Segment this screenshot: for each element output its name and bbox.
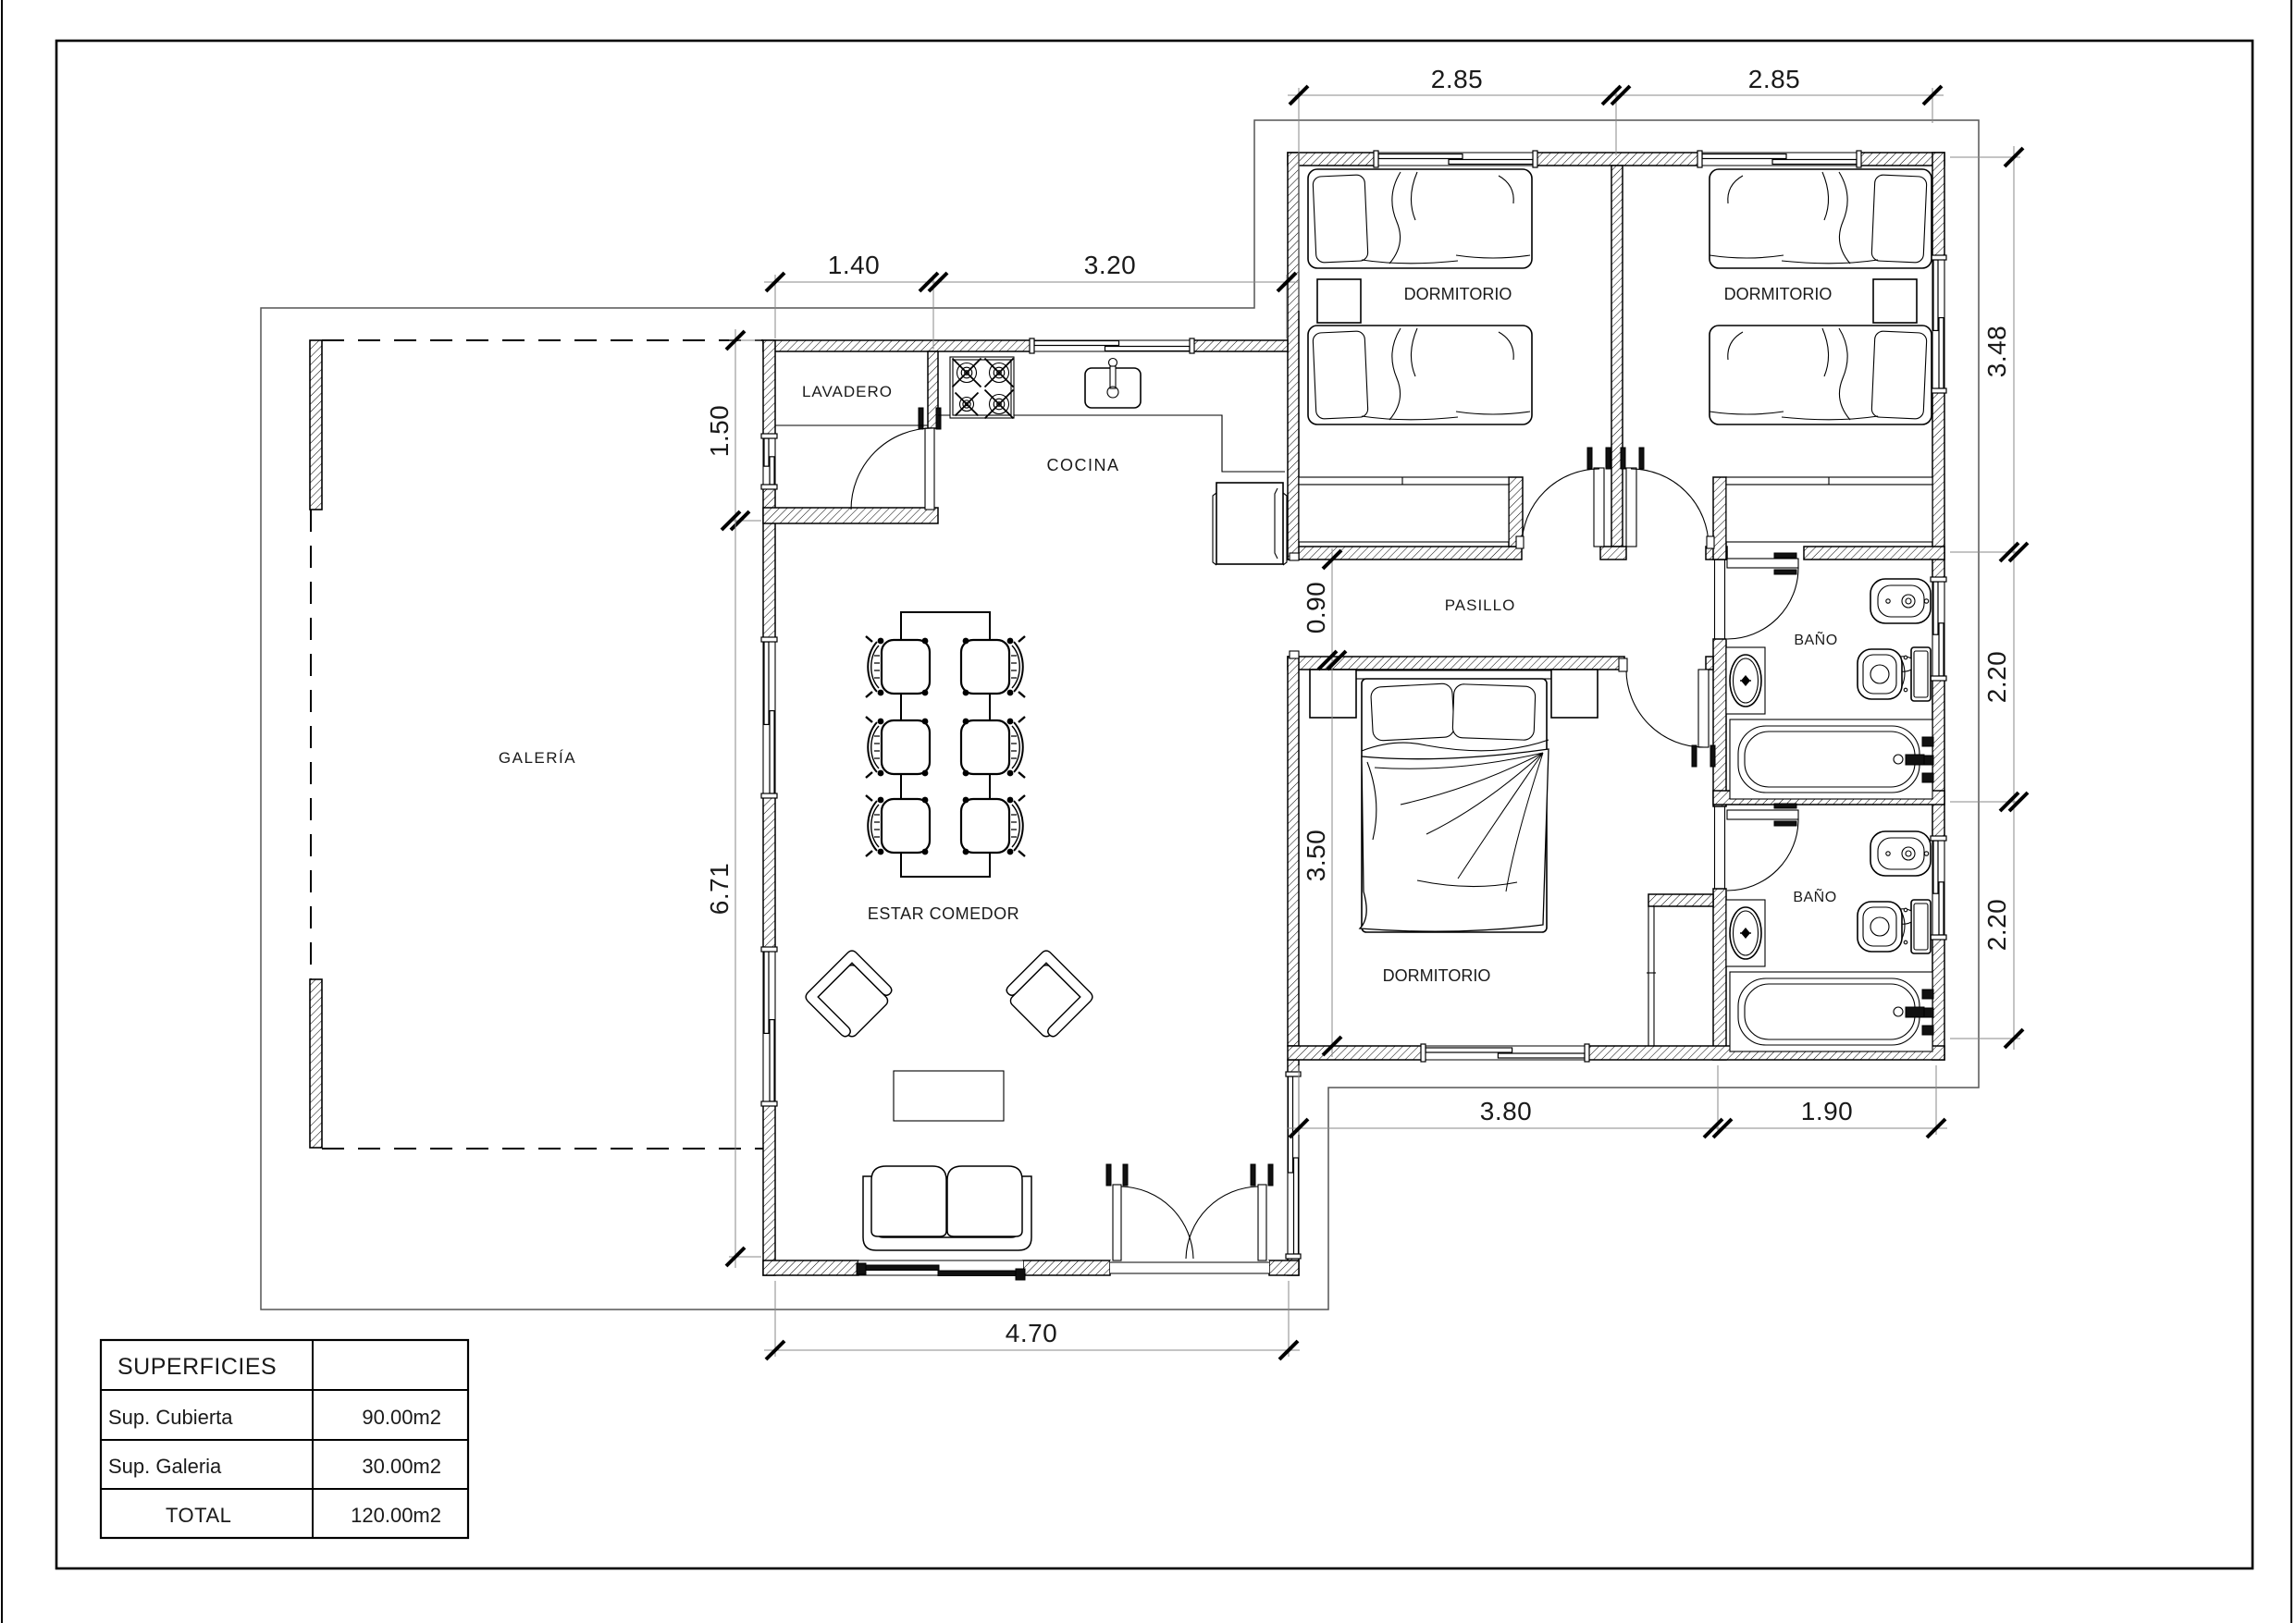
svg-text:PASILLO: PASILLO bbox=[1445, 596, 1516, 614]
svg-text:DORMITORIO: DORMITORIO bbox=[1724, 285, 1833, 303]
svg-text:0.90: 0.90 bbox=[1302, 582, 1330, 634]
svg-text:1.90: 1.90 bbox=[1801, 1097, 1854, 1125]
svg-text:3.50: 3.50 bbox=[1302, 830, 1330, 882]
svg-text:BAÑO: BAÑO bbox=[1793, 887, 1836, 905]
svg-text:30.00m2: 30.00m2 bbox=[362, 1455, 441, 1478]
svg-text:1.40: 1.40 bbox=[828, 251, 881, 279]
svg-text:4.70: 4.70 bbox=[1006, 1319, 1058, 1347]
svg-text:BAÑO: BAÑO bbox=[1794, 630, 1837, 648]
svg-text:120.00m2: 120.00m2 bbox=[351, 1504, 441, 1527]
svg-text:Sup. Galeria: Sup. Galeria bbox=[108, 1455, 222, 1478]
svg-text:DORMITORIO: DORMITORIO bbox=[1404, 285, 1512, 303]
svg-text:DORMITORIO: DORMITORIO bbox=[1383, 966, 1491, 985]
svg-text:1.50: 1.50 bbox=[705, 405, 734, 458]
svg-text:3.48: 3.48 bbox=[1982, 326, 2011, 378]
svg-text:LAVADERO: LAVADERO bbox=[802, 383, 893, 400]
svg-text:Sup. Cubierta: Sup. Cubierta bbox=[108, 1406, 233, 1429]
svg-text:2.85: 2.85 bbox=[1748, 65, 1801, 93]
svg-text:COCINA: COCINA bbox=[1046, 456, 1119, 474]
svg-text:2.85: 2.85 bbox=[1431, 65, 1484, 93]
svg-text:2.20: 2.20 bbox=[1982, 899, 2011, 952]
svg-text:TOTAL: TOTAL bbox=[166, 1504, 231, 1527]
svg-text:3.80: 3.80 bbox=[1480, 1097, 1533, 1125]
svg-text:SUPERFICIES: SUPERFICIES bbox=[117, 1354, 277, 1380]
svg-text:3.20: 3.20 bbox=[1084, 251, 1137, 279]
svg-text:GALERÍA: GALERÍA bbox=[499, 749, 576, 767]
svg-text:90.00m2: 90.00m2 bbox=[362, 1406, 441, 1429]
svg-text:2.20: 2.20 bbox=[1982, 651, 2011, 704]
svg-text:ESTAR COMEDOR: ESTAR COMEDOR bbox=[868, 904, 1019, 923]
svg-text:6.71: 6.71 bbox=[705, 863, 734, 916]
